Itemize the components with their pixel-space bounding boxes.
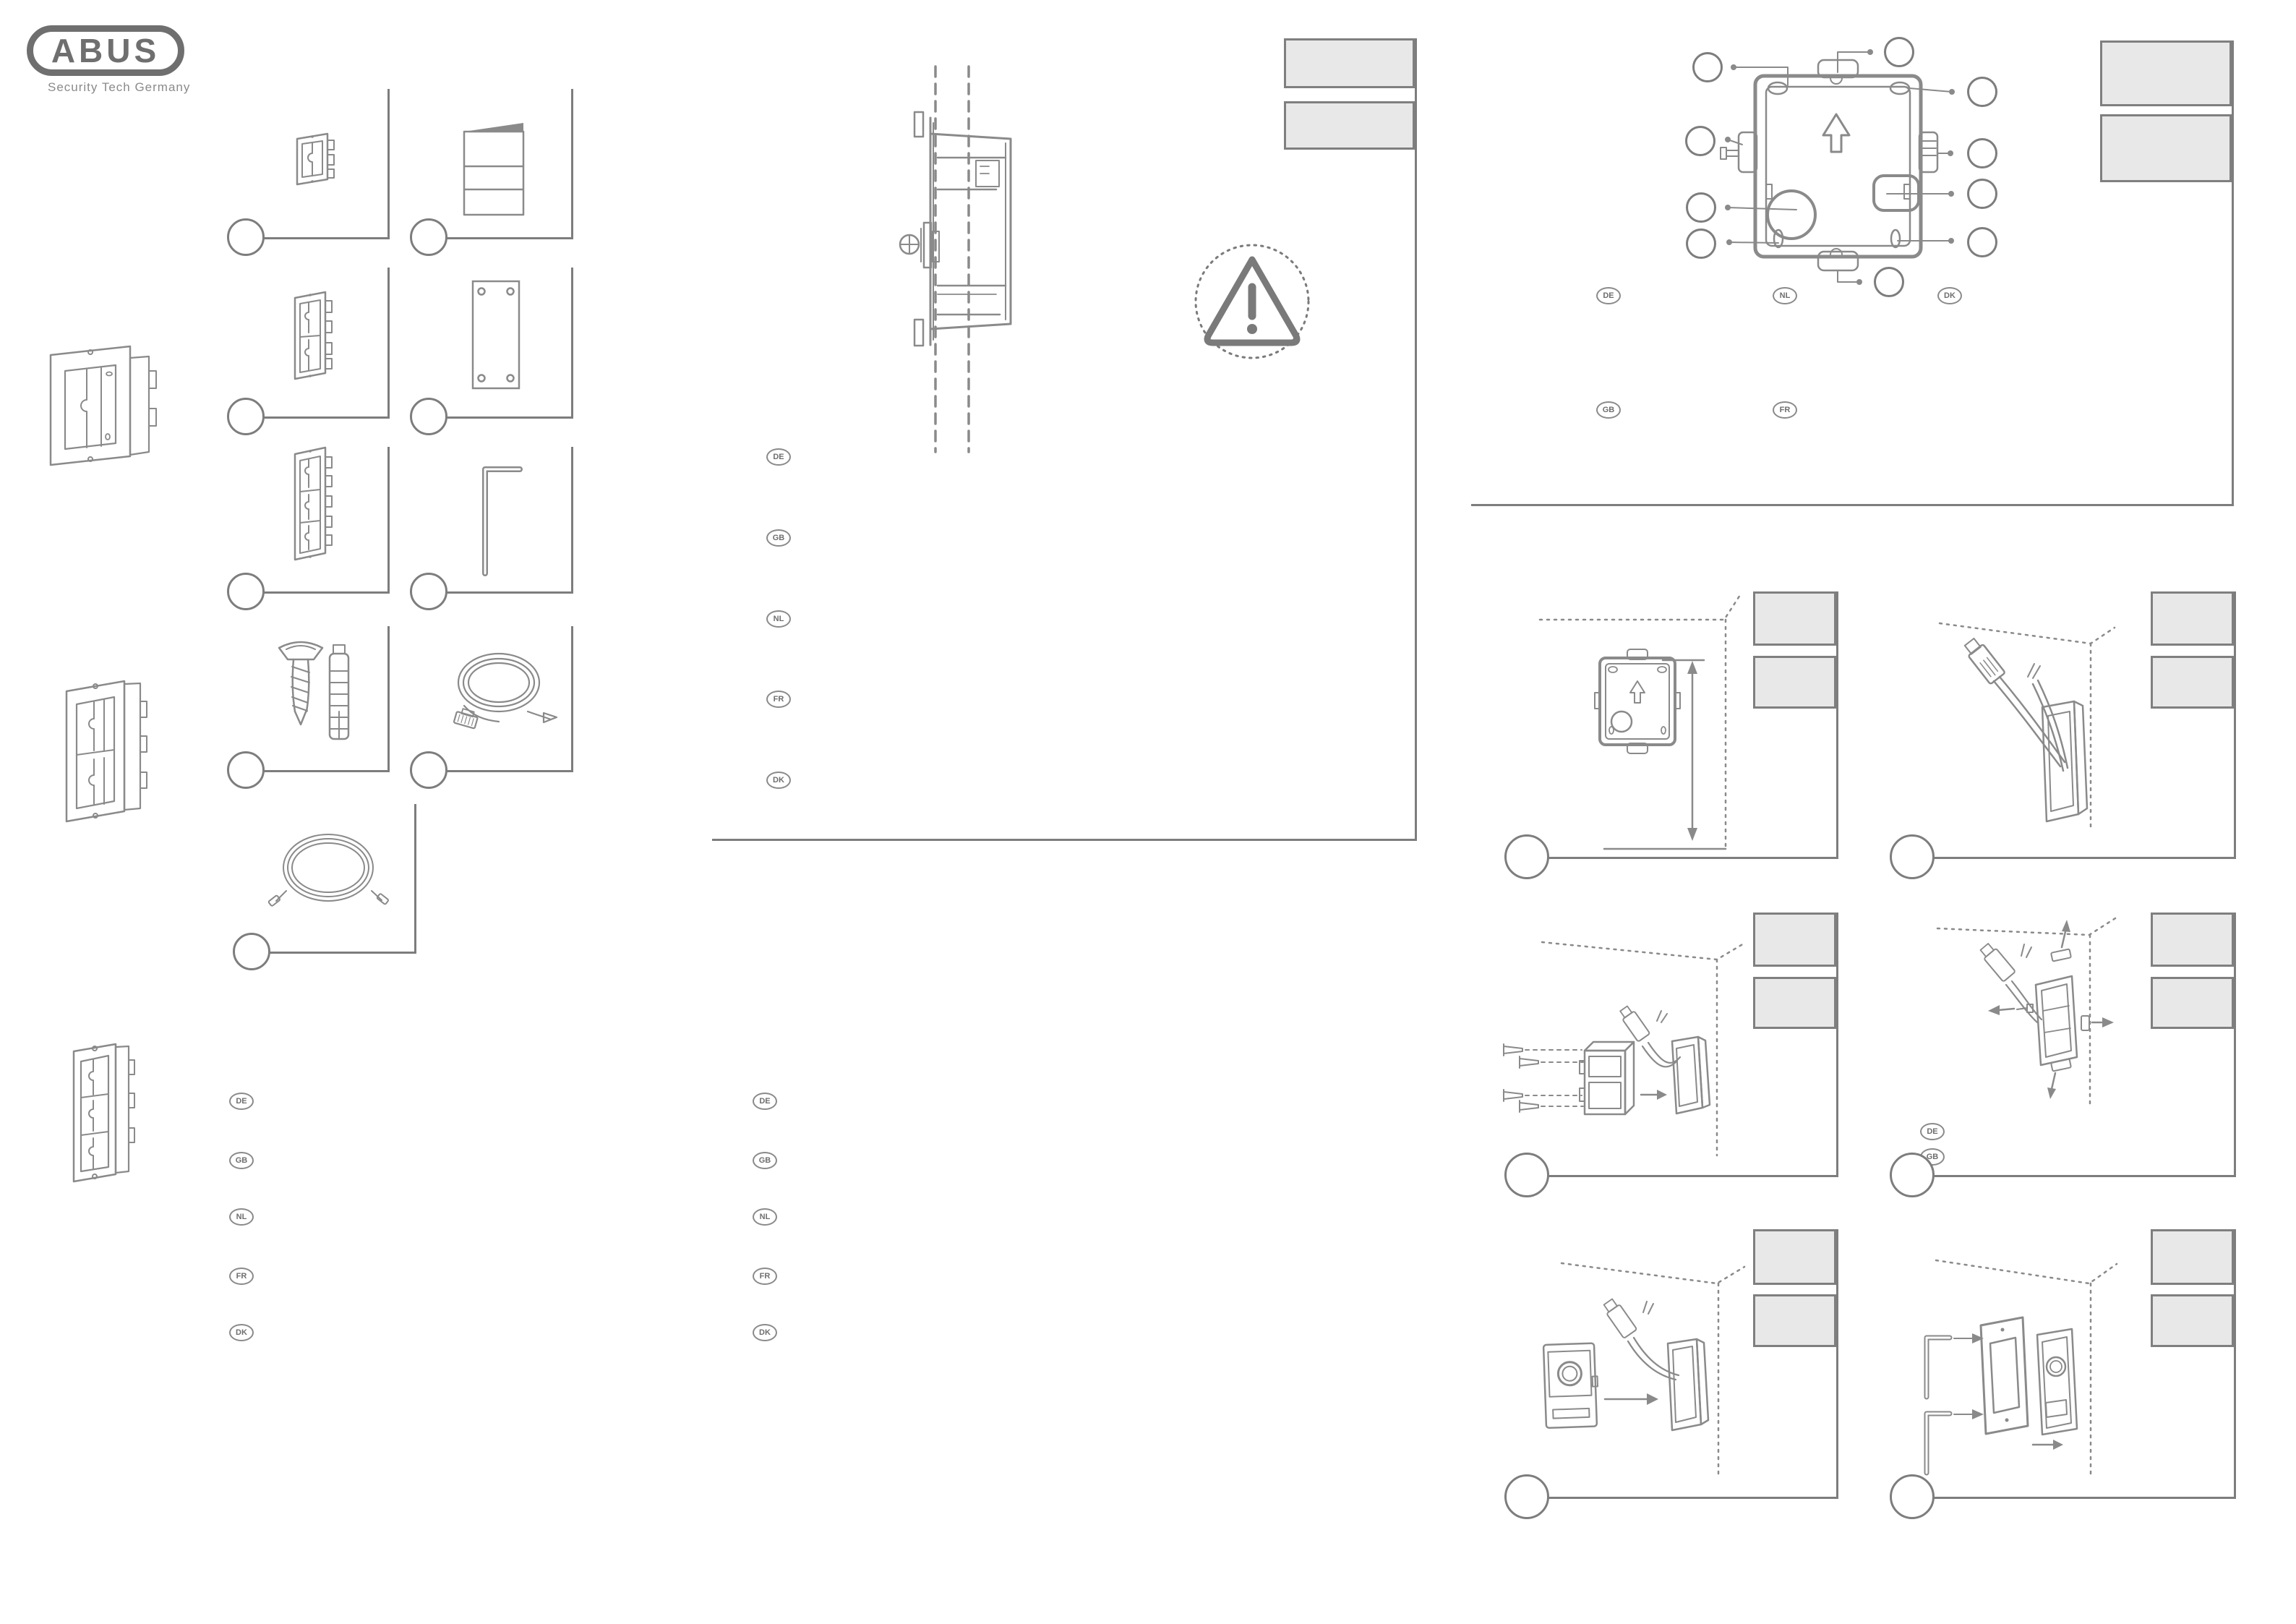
lang-badge-fr: FR	[229, 1268, 254, 1285]
parts-item-circle	[227, 218, 265, 256]
parts-item-circle	[410, 398, 447, 435]
lang-badge-fr: FR	[766, 691, 791, 708]
parts-item-circle	[227, 573, 265, 610]
diagram-callout-circle	[1874, 267, 1904, 297]
step-number-circle	[1504, 1153, 1549, 1197]
title-placeholder-box	[1753, 913, 1836, 967]
title-placeholder-box	[1753, 591, 1836, 646]
diagram-callout-circle	[1967, 77, 1997, 107]
parts-item-circle	[227, 751, 265, 789]
title-placeholder-box	[1284, 38, 1415, 88]
lang-badge-nl: NL	[229, 1208, 254, 1226]
instruction-booklet-icon	[460, 116, 528, 221]
allen-key-icon	[474, 459, 526, 582]
lang-badge-dk: DK	[766, 772, 791, 789]
diagram-callout-circle	[1967, 179, 1997, 209]
diagram-callout-circle	[1685, 126, 1715, 156]
lang-badge-de: DE	[766, 448, 791, 466]
logo-text: ABUS	[51, 31, 160, 70]
wall-cross-section-diagram	[860, 51, 1048, 463]
lang-badge-gb: GB	[1596, 401, 1621, 419]
title-placeholder-box	[2100, 40, 2232, 106]
diagram-callout-circle	[1884, 37, 1914, 67]
step-number-circle	[1890, 1153, 1935, 1197]
lang-badge-dk: DK	[229, 1324, 254, 1341]
parts-item-circle	[410, 751, 447, 789]
warning-icon	[1186, 235, 1319, 369]
step-number-circle	[1504, 834, 1549, 879]
step-number-circle	[1890, 1474, 1935, 1519]
manual-sheet: ABUS Security Tech Germany	[0, 0, 2296, 1624]
title-placeholder-box	[2151, 1229, 2234, 1285]
diagram-callout-circle	[1967, 227, 1997, 257]
lang-badge-nl: NL	[753, 1208, 777, 1226]
lang-badge-de: DE	[753, 1093, 777, 1110]
title-placeholder-box	[2151, 591, 2234, 646]
center-panel-border	[712, 38, 1417, 841]
title-placeholder-box	[1753, 1294, 1836, 1347]
frame-preview-3-module-icon	[69, 1035, 139, 1193]
title-placeholder-box	[1753, 656, 1836, 709]
connection-cable-icon	[269, 824, 388, 918]
diagram-callout-circle	[1967, 138, 1997, 168]
lang-badge-gb: GB	[229, 1152, 254, 1169]
lang-badge-nl: NL	[1773, 287, 1797, 304]
step-number-circle	[1890, 834, 1935, 879]
title-placeholder-box	[2151, 1294, 2234, 1347]
lang-badge-gb: GB	[753, 1152, 777, 1169]
diagram-callout-circle	[1686, 228, 1716, 259]
lang-badge-nl: NL	[766, 610, 791, 628]
frame-preview-2-module-icon	[62, 674, 150, 832]
abus-logo: ABUS	[27, 25, 184, 76]
lang-badge-fr: FR	[1773, 401, 1797, 419]
title-placeholder-box	[2151, 913, 2234, 967]
parts-item-circle	[233, 933, 270, 970]
diagram-callout-circle	[1686, 192, 1716, 223]
title-placeholder-box	[2100, 114, 2232, 182]
screw-and-wall-plug-icon	[266, 633, 356, 753]
step-number-circle	[1504, 1474, 1549, 1519]
title-placeholder-box	[2151, 656, 2234, 709]
lang-badge-de: DE	[1920, 1123, 1945, 1140]
lang-badge-de: DE	[1596, 287, 1621, 304]
lang-badge-gb: GB	[766, 529, 791, 547]
title-placeholder-box	[1753, 1229, 1836, 1285]
frame-preview-1-module-icon	[45, 342, 160, 469]
title-placeholder-box	[1284, 101, 1415, 150]
lang-badge-dk: DK	[753, 1324, 777, 1341]
flush-mount-box-1-module-icon	[293, 129, 343, 187]
parts-item-circle	[410, 218, 447, 256]
network-cable-icon	[442, 641, 554, 738]
parts-item-circle	[227, 398, 265, 435]
mounting-plate-icon	[470, 277, 522, 393]
logo-tagline: Security Tech Germany	[48, 80, 190, 95]
flush-mount-box-3-module-icon	[291, 441, 341, 565]
flush-mount-box-2-module-icon	[291, 286, 341, 384]
title-placeholder-box	[2151, 977, 2234, 1029]
lang-badge-de: DE	[229, 1093, 254, 1110]
lang-badge-fr: FR	[753, 1268, 777, 1285]
diagram-callout-circle	[1692, 52, 1723, 82]
title-placeholder-box	[1753, 977, 1836, 1029]
lang-badge-dk: DK	[1937, 287, 1962, 304]
parts-item-circle	[410, 573, 447, 610]
